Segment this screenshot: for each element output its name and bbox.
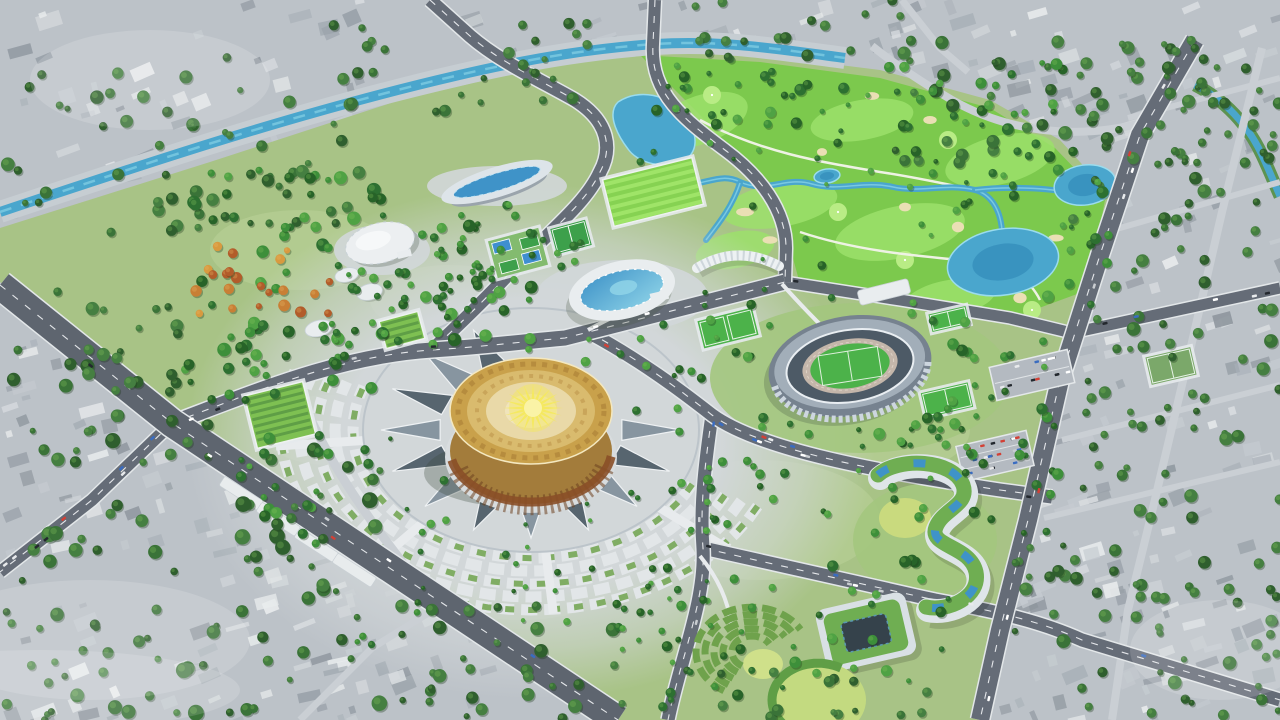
sand-bunker	[762, 236, 777, 244]
sand-bunker	[899, 203, 911, 212]
car	[431, 345, 436, 348]
aerial-masterplan-render	[0, 0, 1280, 720]
sand-bunker	[952, 222, 964, 233]
sand-bunker	[923, 116, 936, 124]
sand-bunker	[1013, 293, 1026, 303]
sand-bunker	[817, 148, 827, 156]
scene-canvas	[0, 0, 1280, 720]
car	[698, 517, 701, 522]
